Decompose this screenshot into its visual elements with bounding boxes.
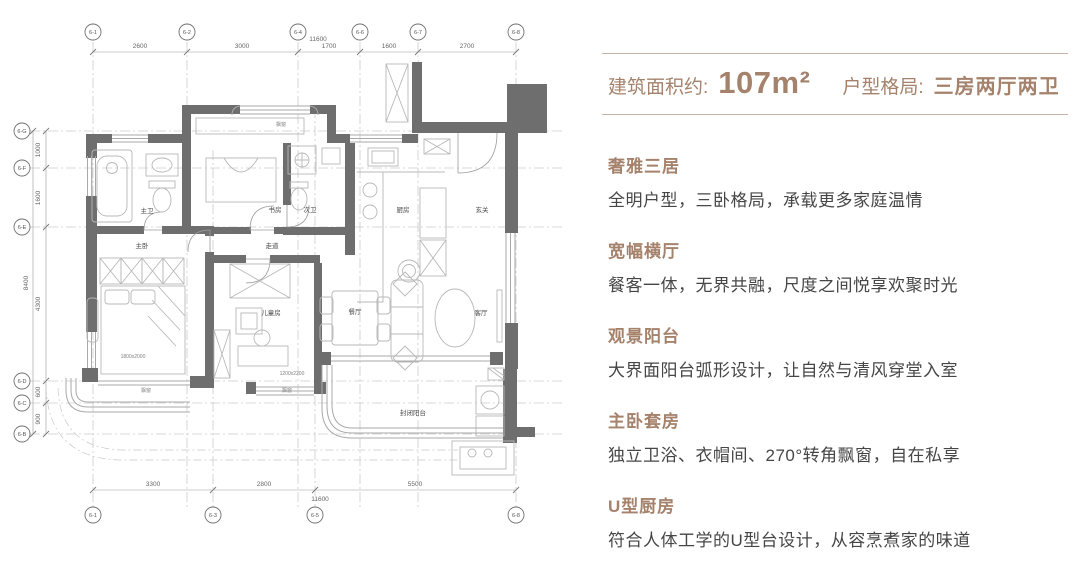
area-header: 建筑面积约: 107m² 户型格局: 三房两厅两卫 xyxy=(602,53,1068,115)
grid-marker: 6-C xyxy=(18,401,27,407)
dim-label: 2600 xyxy=(133,43,148,50)
area-label: 建筑面积约: xyxy=(608,72,708,99)
grid-marker: 6-1 xyxy=(89,30,97,36)
room-label-master-bath: 主卫 xyxy=(141,206,155,215)
dim-label: 1600 xyxy=(382,43,397,50)
grid-marker: 6-7 xyxy=(414,30,422,36)
feature-desc: 大界面阳台弧形设计，让自然与清风穿堂入室 xyxy=(608,356,1068,381)
room-label-master-bed: 主卧 xyxy=(136,241,150,250)
feature-desc: 餐客一体，无界共融，尺度之间悦享欢聚时光 xyxy=(608,271,1068,296)
info-panel: 建筑面积约: 107m² 户型格局: 三房两厅两卫 奢雅三居 全明户型，三卧格局… xyxy=(602,53,1068,577)
dim-label: 3300 xyxy=(146,481,161,488)
doors xyxy=(144,133,497,283)
grid-marker: 6-6 xyxy=(356,30,364,36)
dim-label: 4300 xyxy=(35,296,42,311)
room-label-dining: 餐厅 xyxy=(349,307,363,316)
feature-item: U型厨房 符合人体工学的U型台设计，从容烹煮家的味道 xyxy=(608,492,1068,551)
grid-marker: 6-B xyxy=(18,432,27,438)
grid-marker: 6-2 xyxy=(183,30,191,36)
room-label-foyer: 玄关 xyxy=(476,205,490,214)
bay-window-label: 飘窗 xyxy=(141,387,151,394)
grid-marker: 6-8 xyxy=(512,513,520,519)
room-label-living: 客厅 xyxy=(475,308,489,317)
dim-label: 1600 xyxy=(35,190,42,205)
bay-window-label: 飘窗 xyxy=(276,121,286,128)
feature-title: 宽幅横厅 xyxy=(608,237,1068,262)
grid-markers-bottom: 6-1 6-3 6-5 6-8 xyxy=(85,507,524,523)
feature-item: 主卧套房 独立卫浴、衣帽间、270°转角飘窗，自在私享 xyxy=(608,407,1068,466)
area-value: 107m² xyxy=(718,65,810,101)
grid-marker: 6-1 xyxy=(89,513,97,519)
bay-size-label: 1200x2200 xyxy=(280,371,305,377)
dim-total-width: 11600 xyxy=(309,36,327,43)
feature-title: 观景阳台 xyxy=(608,322,1068,347)
dim-label: 5500 xyxy=(408,481,423,488)
grid-marker: 6-4 xyxy=(294,30,302,36)
bay-window-label: 飘窗 xyxy=(282,387,292,394)
feature-item: 宽幅横厅 餐客一体，无界共融，尺度之间悦享欢聚时光 xyxy=(608,237,1068,296)
room-labels: 主卫 书房 次卫 厨房 玄关 主卧 走道 儿童房 餐厅 客厅 封闭阳台 飘窗 飘… xyxy=(121,121,489,417)
grid-marker: 6-F xyxy=(18,166,27,172)
grid-marker: 6-3 xyxy=(209,513,217,519)
room-label-kitchen: 厨房 xyxy=(397,205,410,214)
layout-value: 三房两厅两卫 xyxy=(934,70,1060,99)
room-label-balcony: 封闭阳台 xyxy=(400,408,426,417)
dim-label: 2800 xyxy=(257,481,272,488)
room-label-kids: 儿童房 xyxy=(261,308,281,317)
room-label-study: 书房 xyxy=(269,205,282,214)
dim-label: 900 xyxy=(35,413,42,424)
feature-list: 奢雅三居 全明户型，三卧格局，承载更多家庭温情 宽幅横厅 餐客一体，无界共融，尺… xyxy=(602,152,1068,551)
dim-label: 600 xyxy=(35,386,42,397)
dim-total-width-bottom: 11600 xyxy=(311,496,329,503)
feature-title: U型厨房 xyxy=(608,492,1068,517)
dim-label: 2700 xyxy=(460,43,475,50)
dim-total-height: 8400 xyxy=(23,275,30,290)
grid-marker: 6-G xyxy=(17,129,26,135)
grid-marker: 6-D xyxy=(18,379,27,385)
grid-marker: 6-8 xyxy=(512,30,520,36)
room-label-second-bath: 次卫 xyxy=(304,205,318,214)
dim-label: 1700 xyxy=(322,43,337,50)
feature-desc: 全明户型，三卧格局，承载更多家庭温情 xyxy=(608,186,1068,211)
dim-label: 3000 xyxy=(235,43,250,50)
floor-plan-drawing: 6-1 6-2 6-4 6-6 6-7 6-8 6-G 6-F 6-E 6-D … xyxy=(0,0,585,560)
floor-plan-area: 6-1 6-2 6-4 6-6 6-7 6-8 6-G 6-F 6-E 6-D … xyxy=(0,0,585,560)
feature-item: 观景阳台 大界面阳台弧形设计，让自然与清风穿堂入室 xyxy=(608,322,1068,381)
grid-marker: 6-5 xyxy=(311,513,319,519)
feature-title: 奢雅三居 xyxy=(608,152,1068,177)
feature-desc: 符合人体工学的U型台设计，从容烹煮家的味道 xyxy=(608,526,1068,551)
feature-desc: 独立卫浴、衣帽间、270°转角飘窗，自在私享 xyxy=(608,441,1068,466)
grid-marker: 6-E xyxy=(18,225,27,231)
room-label-corridor: 走道 xyxy=(266,241,280,250)
bed-size-label: 1800x2000 xyxy=(121,354,146,360)
feature-item: 奢雅三居 全明户型，三卧格局，承载更多家庭温情 xyxy=(608,152,1068,211)
layout-label: 户型格局: xyxy=(842,72,923,99)
dim-label: 1000 xyxy=(35,142,42,157)
feature-title: 主卧套房 xyxy=(608,407,1068,432)
grid-markers-top: 6-1 6-2 6-4 6-6 6-7 6-8 xyxy=(85,24,524,40)
